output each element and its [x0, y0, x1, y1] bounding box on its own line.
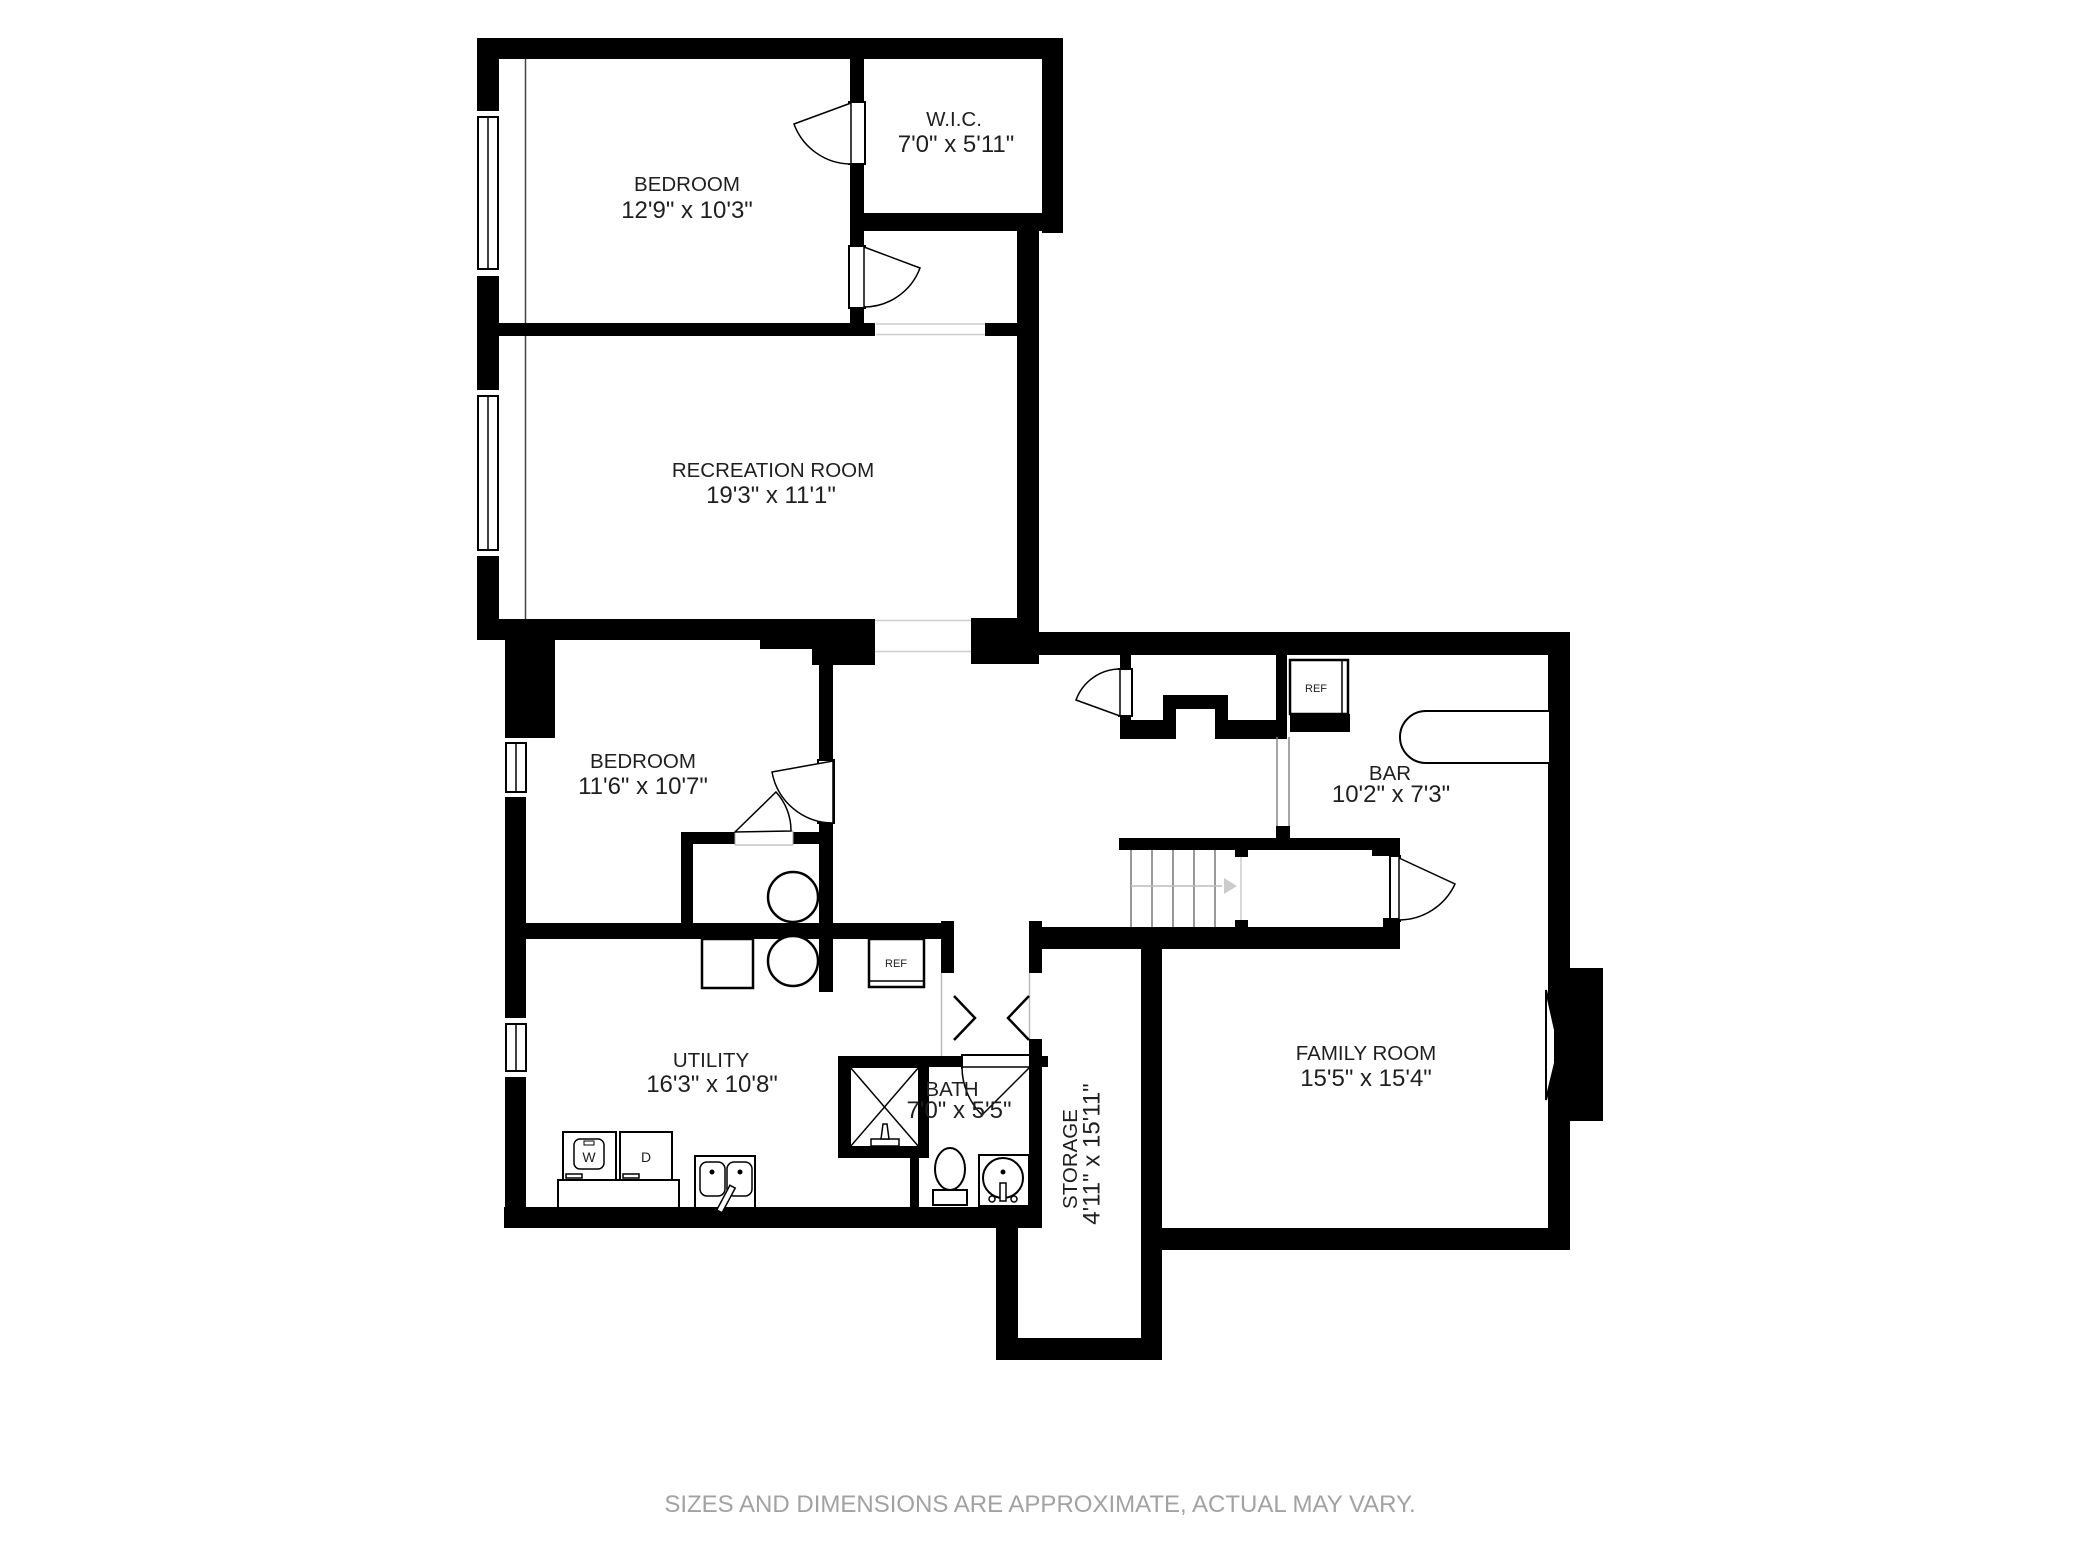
svg-text:REF: REF: [1305, 683, 1327, 695]
svg-text:D: D: [641, 1149, 651, 1165]
svg-text:SIZES AND DIMENSIONS ARE APPRO: SIZES AND DIMENSIONS ARE APPROXIMATE, AC…: [664, 1491, 1415, 1518]
svg-text:7'0" x 5'11": 7'0" x 5'11": [898, 131, 1015, 158]
svg-text:10'2" x 7'3": 10'2" x 7'3": [1332, 781, 1450, 808]
svg-text:12'9" x 10'3": 12'9" x 10'3": [621, 197, 753, 224]
svg-text:4'11" x 15'11": 4'11" x 15'11": [1079, 1083, 1106, 1224]
svg-text:W.I.C.: W.I.C.: [926, 108, 982, 131]
svg-text:UTILITY: UTILITY: [673, 1049, 750, 1072]
svg-text:11'6" x 10'7": 11'6" x 10'7": [578, 773, 708, 800]
svg-text:15'5" x 15'4": 15'5" x 15'4": [1300, 1065, 1432, 1092]
svg-text:BEDROOM: BEDROOM: [590, 750, 696, 773]
svg-text:16'3" x 10'8": 16'3" x 10'8": [646, 1071, 778, 1098]
svg-text:REF: REF: [885, 958, 907, 970]
svg-text:BEDROOM: BEDROOM: [634, 173, 740, 196]
svg-text:7'0" x 5'5": 7'0" x 5'5": [907, 1097, 1012, 1124]
svg-text:19'3" x 11'1": 19'3" x 11'1": [706, 482, 836, 509]
svg-text:FAMILY ROOM: FAMILY ROOM: [1296, 1042, 1437, 1065]
svg-text:RECREATION ROOM: RECREATION ROOM: [672, 459, 874, 482]
svg-text:W: W: [582, 1149, 596, 1165]
